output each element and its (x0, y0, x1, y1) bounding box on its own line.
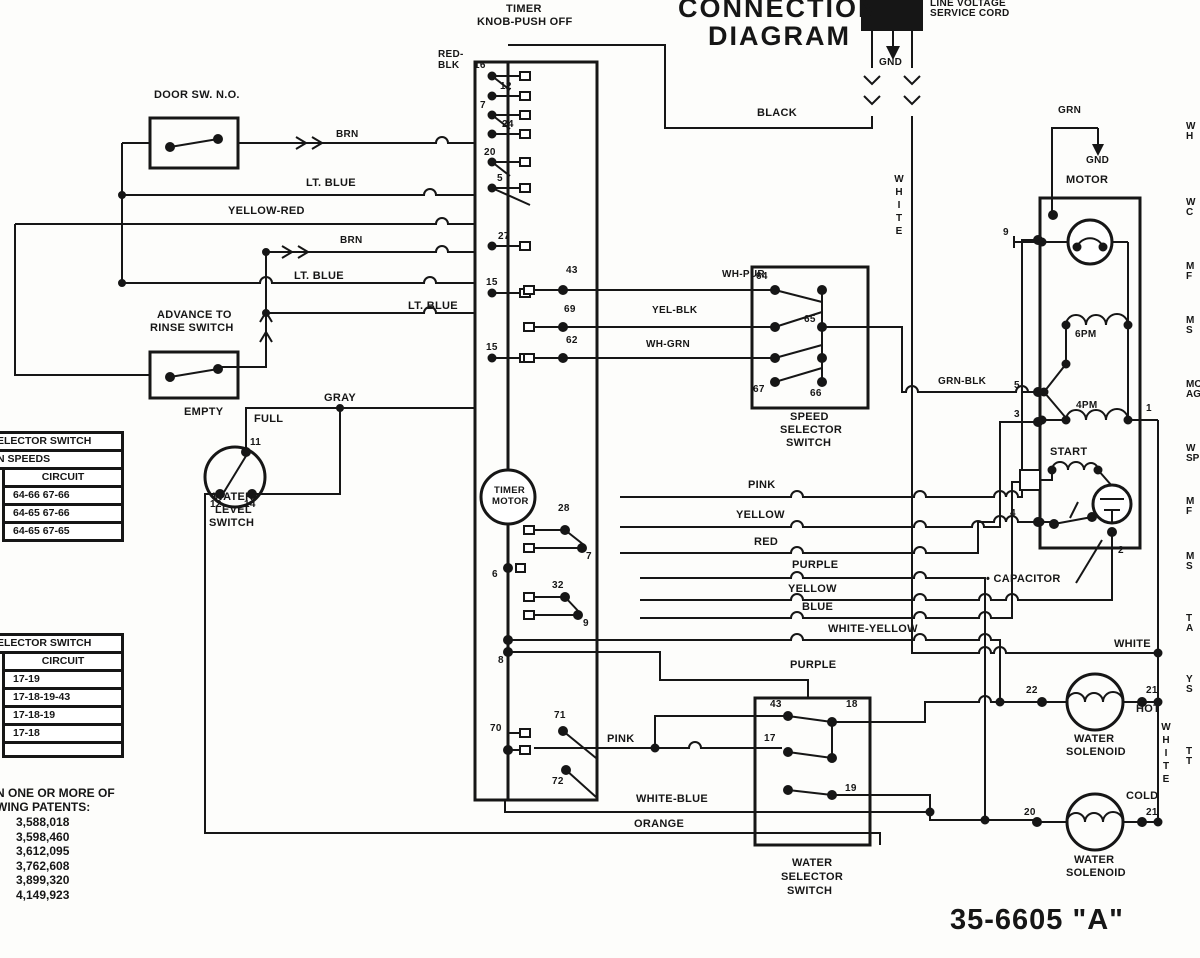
edge-fragment-line: A (1186, 624, 1193, 634)
speed-selector-table: ELECTOR SWITCH N SPEEDS CIRCUIT 64-66 67… (0, 434, 124, 542)
solenoid-hot-name1: WATER (1074, 734, 1114, 746)
timer-bottom-terminals (504, 727, 596, 797)
water-level-switch-group (205, 405, 880, 845)
wire-purple-label1: PURPLE (792, 560, 838, 572)
timer-terminal-15a: 15 (486, 278, 498, 289)
wire-redblk-label1: RED- (438, 50, 464, 61)
patent-number: 3,612,095 (16, 844, 69, 858)
gnd-label-motor: GND (1086, 156, 1109, 167)
timer-terminal-8: 8 (498, 656, 504, 667)
timer-terminal-69: 69 (564, 305, 576, 316)
timer-title1: TIMER (506, 4, 542, 16)
water-level-label1: WATER (213, 492, 253, 504)
edge-fragment-line: S (1186, 326, 1194, 336)
patents-line2: WING PATENTS: (0, 800, 90, 814)
wire-whiteyellow-label: WHITE-YELLOW (828, 624, 918, 636)
solenoid-terminal-22: 22 (1026, 686, 1038, 697)
edge-fragment: WC (1186, 198, 1195, 218)
solenoid-terminal-21a: 21 (1146, 686, 1158, 697)
edge-fragment: WSP (1186, 444, 1199, 464)
timer-motor-label1: TIMER (494, 486, 525, 496)
patents-line1: N ONE OR MORE OF (0, 786, 115, 800)
motor-coil-4pm-label: 4PM (1076, 401, 1097, 412)
timer-terminal-72: 72 (552, 777, 564, 788)
wire-white-label: WHITE (1114, 639, 1151, 651)
timer-terminal-16: 16 (474, 61, 486, 72)
water-level-empty-label: EMPTY (184, 407, 223, 419)
edge-fragment: MOAG (1186, 380, 1200, 400)
water-level-terminal-11: 11 (250, 438, 261, 449)
water-solenoid-hot-group (1038, 674, 1146, 730)
motor-group (1014, 128, 1162, 826)
speed-selector-label2: SELECTOR (780, 425, 842, 437)
wire-brn-label2: BRN (340, 236, 363, 247)
rinse-switch-group (150, 352, 238, 398)
wsel-terminal-19: 19 (845, 784, 857, 795)
diagram-canvas (0, 0, 1200, 958)
edge-fragment: MF (1186, 497, 1194, 517)
wire-ltblue-label1: LT. BLUE (306, 178, 356, 190)
timer-terminal-70: 70 (490, 724, 502, 735)
water-selector-label3: SWITCH (787, 886, 832, 898)
patent-number: 3,762,608 (16, 859, 69, 873)
edge-fragment: MF (1186, 262, 1194, 282)
timer-terminal-27: 27 (498, 232, 510, 243)
timer-terminal-c9: 9 (583, 619, 589, 630)
wire-black-label: BLACK (757, 108, 797, 120)
speed-terminal-64: 64 (756, 272, 768, 283)
wire-gray-label: GRAY (324, 393, 356, 405)
wire-redblk-label2: BLK (438, 61, 459, 72)
speed-selector-group (752, 267, 1042, 408)
edge-fragment: MS (1186, 316, 1194, 336)
patent-number: 3,899,320 (16, 873, 69, 887)
edge-fragment-line: T (1186, 757, 1192, 767)
wire-yelblk-label: YEL-BLK (652, 306, 697, 317)
wire-ltblue-label3: LT. BLUE (408, 301, 458, 313)
timer-title2: KNOB-PUSH OFF (477, 17, 573, 29)
wire-whgrn-label: WH-GRN (646, 340, 690, 351)
edge-fragment-line: H (1186, 132, 1195, 142)
timer-terminal-28: 28 (558, 504, 570, 515)
edge-fragment: YS (1186, 675, 1193, 695)
door-switch-label: DOOR SW. N.O. (154, 90, 240, 102)
timer-middle-terminals (504, 526, 586, 656)
wire-brn-label1: BRN (336, 130, 359, 141)
timer-terminal-71: 71 (554, 711, 566, 722)
wire-pink-label2: PINK (607, 734, 634, 746)
timer-terminal-12: 12 (500, 82, 512, 93)
wire-purple-label2: PURPLE (790, 660, 836, 672)
edge-fragment: WH (1186, 122, 1195, 142)
motor-start-label: START (1050, 447, 1087, 459)
rinse-switch-label1: ADVANCE TO (157, 310, 232, 322)
capacitor-label: • CAPACITOR (986, 574, 1061, 586)
edge-fragment: MS (1186, 552, 1194, 572)
timer-terminal-5: 5 (497, 174, 503, 185)
door-switch-group (15, 118, 475, 375)
motor-terminal-4: 4 (1010, 509, 1016, 520)
timer-terminal-15b: 15 (486, 343, 498, 354)
patent-number: 3,588,018 (16, 815, 69, 829)
solenoid-terminal-20: 20 (1024, 808, 1036, 819)
wire-white-vertical-label-1: WHITE (893, 174, 904, 239)
wsel-terminal-43: 43 (770, 700, 782, 711)
edge-fragment-line: S (1186, 685, 1193, 695)
water-selector-table: ELECTOR SWITCH CIRCUIT 17-19 17-18-19-43… (0, 636, 124, 758)
wire-pink-label1: PINK (748, 480, 775, 492)
rinse-switch-label2: RINSE SWITCH (150, 323, 234, 335)
edge-fragment-line: AG (1186, 390, 1200, 400)
wire-white-vertical-label-2: WHITE (1160, 722, 1171, 787)
speed-terminal-67: 67 (753, 385, 765, 396)
patent-number: 4,149,923 (16, 888, 69, 902)
wire-yellow-label2: YELLOW (788, 584, 837, 596)
timer-terminal-24: 24 (502, 120, 514, 131)
edge-fragment-line: F (1186, 272, 1194, 282)
wire-grn-label: GRN (1058, 106, 1081, 117)
speed-selector-label3: SWITCH (786, 438, 831, 450)
wire-orange-label: ORANGE (634, 819, 684, 831)
solenoid-terminal-21b: 21 (1146, 808, 1158, 819)
water-table-row (2, 741, 124, 758)
solenoid-cold-name2: SOLENOID (1066, 868, 1126, 880)
timer-terminal-6: 6 (492, 570, 498, 581)
wire-red-label: RED (754, 537, 778, 549)
solenoid-cold-label: COLD (1126, 791, 1158, 803)
solenoid-hot-name2: SOLENOID (1066, 747, 1126, 759)
speed-terminal-65: 65 (804, 315, 816, 326)
timer-terminal-32: 32 (552, 581, 564, 592)
motor-terminal-1: 1 (1146, 404, 1152, 415)
timer-motor-label2: MOTOR (492, 497, 529, 507)
motor-label: MOTOR (1066, 175, 1108, 187)
edge-fragment: TT (1186, 747, 1192, 767)
timer-terminal-62: 62 (566, 336, 578, 347)
wsel-terminal-18: 18 (846, 700, 858, 711)
speed-terminal-66: 66 (810, 389, 822, 400)
edge-fragment-line: SP (1186, 454, 1199, 464)
water-selector-label1: WATER (792, 858, 832, 870)
solenoid-cold-name1: WATER (1074, 855, 1114, 867)
page-title-line2: DIAGRAM (708, 22, 851, 50)
patent-number: 3,598,460 (16, 830, 69, 844)
line-voltage-label2: SERVICE CORD (930, 9, 1010, 20)
motor-terminal-5: 5 (1014, 381, 1020, 392)
connection-diagram: CONNECTION DIAGRAM LINE VOLTAGE SERVICE … (0, 0, 1200, 958)
gnd-label-cord: GND (879, 58, 902, 69)
timer-terminal-20: 20 (484, 148, 496, 159)
edge-fragment-line: S (1186, 562, 1194, 572)
water-level-label3: SWITCH (209, 518, 254, 530)
edge-fragment-line: C (1186, 208, 1195, 218)
timer-terminal-c7: 7 (586, 552, 592, 563)
timer-right-terminals (524, 286, 775, 362)
model-number: 35-6605 "A" (950, 905, 1124, 935)
motor-terminal-9: 9 (1003, 228, 1009, 239)
wire-ltblue-label2: LT. BLUE (294, 271, 344, 283)
wire-yellow-label1: YELLOW (736, 510, 785, 522)
solenoid-hot-label: HOT (1136, 704, 1160, 716)
speed-table-row: 64-65 67-65 (2, 521, 124, 542)
wire-whiteblue-label: WHITE-BLUE (636, 794, 708, 806)
water-selector-group (755, 696, 1042, 845)
edge-fragment-line: F (1186, 507, 1194, 517)
timer-terminal-43: 43 (566, 266, 578, 277)
water-level-full-label: FULL (254, 414, 283, 426)
edge-fragment: TA (1186, 614, 1193, 634)
motor-terminal-3: 3 (1014, 410, 1020, 421)
motor-terminal-2: 2 (1118, 546, 1124, 557)
wsel-terminal-17: 17 (764, 734, 776, 745)
motor-coil-6pm-label: 6PM (1075, 330, 1096, 341)
timer-terminal-7: 7 (480, 101, 486, 112)
timer-group (475, 62, 775, 800)
wire-blue-label: BLUE (802, 602, 833, 614)
wire-yellowred-label: YELLOW-RED (228, 206, 305, 218)
speed-selector-label1: SPEED (790, 412, 829, 424)
wire-grnblk-label: GRN-BLK (938, 377, 986, 388)
page-title-line1: CONNECTION (678, 0, 880, 22)
water-level-label2: LEVEL (215, 505, 252, 517)
water-selector-label2: SELECTOR (781, 872, 843, 884)
